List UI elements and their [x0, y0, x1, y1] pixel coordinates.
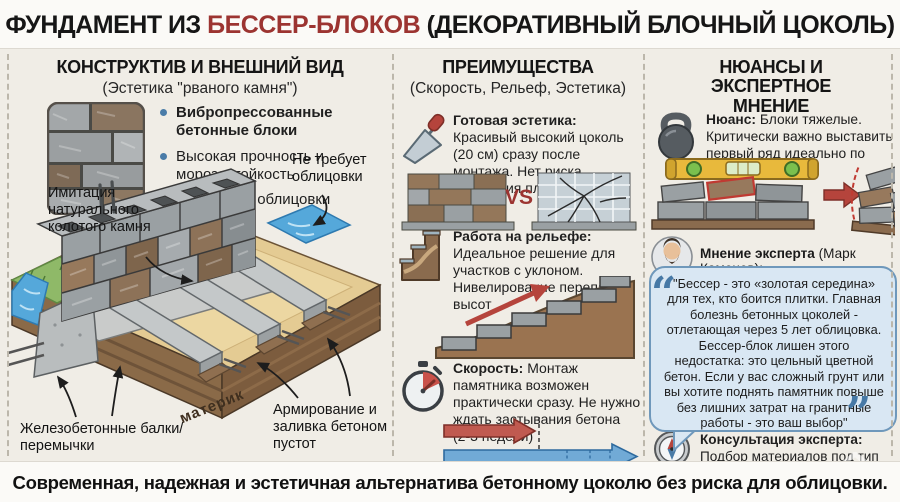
- advantage-title: Работа на рельефе:: [453, 228, 592, 244]
- infographic-besser-blocks: ФУНДАМЕНТ ИЗ БЕССЕР-БЛОКОВ (ДЕКОРАТИВНЫЙ…: [0, 0, 900, 502]
- consequence-arrow: [824, 183, 860, 207]
- title-suffix: (ДЕКОРАТИВНЫЙ БЛОЧНЫЙ ЦОКОЛЬ): [420, 11, 894, 39]
- block-wall-good: [402, 174, 514, 230]
- frame-dash-right: [891, 54, 893, 456]
- water-pond-right: [268, 205, 350, 243]
- frame-dash-left: [7, 54, 9, 456]
- label-no-cladding: Не требует облицовки: [292, 152, 376, 186]
- spirit-level-icon: [666, 159, 818, 179]
- left-subheading: (Эстетика "рваного камня"): [20, 80, 380, 98]
- slope-steps-graphic: [432, 276, 637, 360]
- title-bar: ФУНДАМЕНТ ИЗ БЕССЕР-БЛОКОВ (ДЕКОРАТИВНЫЙ…: [0, 0, 900, 49]
- bullet-item: Вибропрессованные бетонные блоки: [160, 104, 380, 141]
- footer-bar: Современная, надежная и эстетичная альте…: [0, 461, 900, 502]
- advantage-title: Скорость:: [453, 360, 523, 376]
- divider-left-middle: [392, 54, 394, 456]
- label-beams: Железобетонные балки/перемычки: [20, 421, 190, 455]
- bullet-dot: [160, 109, 167, 116]
- divider-middle-right: [643, 54, 645, 456]
- tiled-wall-cracked: [532, 173, 636, 230]
- left-heading: КОНСТРУКТИВ И ВНЕШНИЙ ВИД: [20, 58, 380, 77]
- middle-heading: ПРЕИМУЩЕСТВА: [396, 58, 640, 77]
- advantage-title: Готовая эстетика:: [453, 112, 577, 128]
- trowel-icon: [399, 112, 447, 164]
- title-prefix: ФУНДАМЕНТ ИЗ: [5, 11, 207, 39]
- stopwatch-icon: [399, 360, 447, 414]
- label-imitation: Имитация натурального колотого камня: [48, 185, 178, 236]
- nuance-title: Нюанс:: [706, 112, 756, 127]
- fast-arrow: [444, 419, 535, 443]
- middle-subheading: (Скорость, Рельеф, Эстетика): [396, 80, 640, 98]
- footer-text: Современная, надежная и эстетичная альте…: [0, 462, 900, 502]
- bullet-dot: [160, 153, 167, 160]
- bullet-text: Вибропрессованные бетонные блоки: [176, 104, 333, 139]
- label-reinforcement: Армирование и заливка бетоном пустот: [273, 402, 388, 453]
- wall-first-row: [652, 177, 814, 229]
- title-highlight: БЕССЕР-БЛОКОВ: [207, 11, 420, 39]
- leveling-illustration: [650, 156, 895, 238]
- vs-label: VS: [505, 186, 533, 210]
- stairs-icon: [399, 226, 447, 282]
- open-quote-icon: “: [651, 272, 676, 316]
- page-title: ФУНДАМЕНТ ИЗ БЕССЕР-БЛОКОВ (ДЕКОРАТИВНЫЙ…: [0, 0, 900, 48]
- right-heading: НЮАНСЫ И ЭКСПЕРТНОЕ МНЕНИЕ: [676, 58, 866, 116]
- close-quote-icon: ”: [846, 392, 871, 436]
- expert-label: Мнение эксперта: [700, 246, 815, 261]
- kettlebell-icon: [653, 112, 699, 160]
